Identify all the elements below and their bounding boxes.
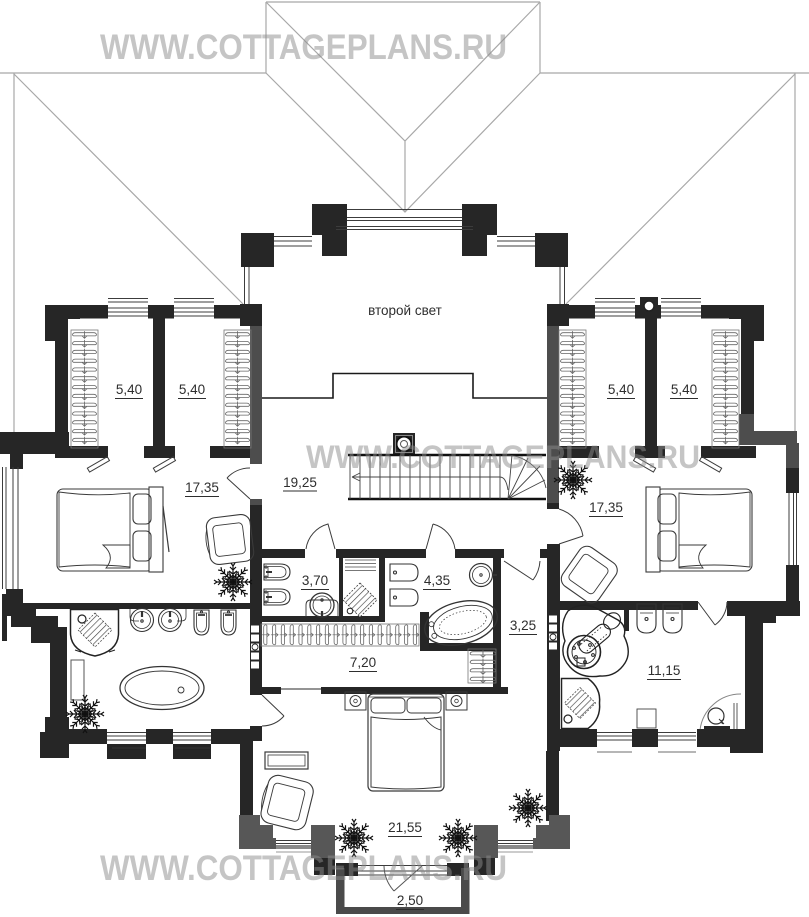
svg-text:17,35: 17,35 <box>185 480 219 495</box>
svg-text:3,70: 3,70 <box>302 573 328 588</box>
svg-text:WWW.COTTAGEPLANS.RU: WWW.COTTAGEPLANS.RU <box>306 439 700 475</box>
svg-text:19,25: 19,25 <box>283 475 317 490</box>
svg-text:3,25: 3,25 <box>510 618 536 633</box>
svg-text:5,40: 5,40 <box>179 382 205 397</box>
svg-text:2,50: 2,50 <box>397 893 423 908</box>
svg-text:7,20: 7,20 <box>350 655 376 670</box>
svg-text:4,35: 4,35 <box>424 573 450 588</box>
svg-text:5,40: 5,40 <box>116 382 142 397</box>
svg-text:21,55: 21,55 <box>388 820 422 835</box>
svg-text:5,40: 5,40 <box>671 382 697 397</box>
svg-text:17,35: 17,35 <box>589 500 623 515</box>
svg-text:5,40: 5,40 <box>608 382 634 397</box>
svg-text:11,15: 11,15 <box>648 663 681 678</box>
svg-text:второй свет: второй свет <box>368 303 442 318</box>
svg-text:WWW.COTTAGEPLANS.RU: WWW.COTTAGEPLANS.RU <box>100 849 507 888</box>
svg-text:WWW.COTTAGEPLANS.RU: WWW.COTTAGEPLANS.RU <box>100 28 507 67</box>
